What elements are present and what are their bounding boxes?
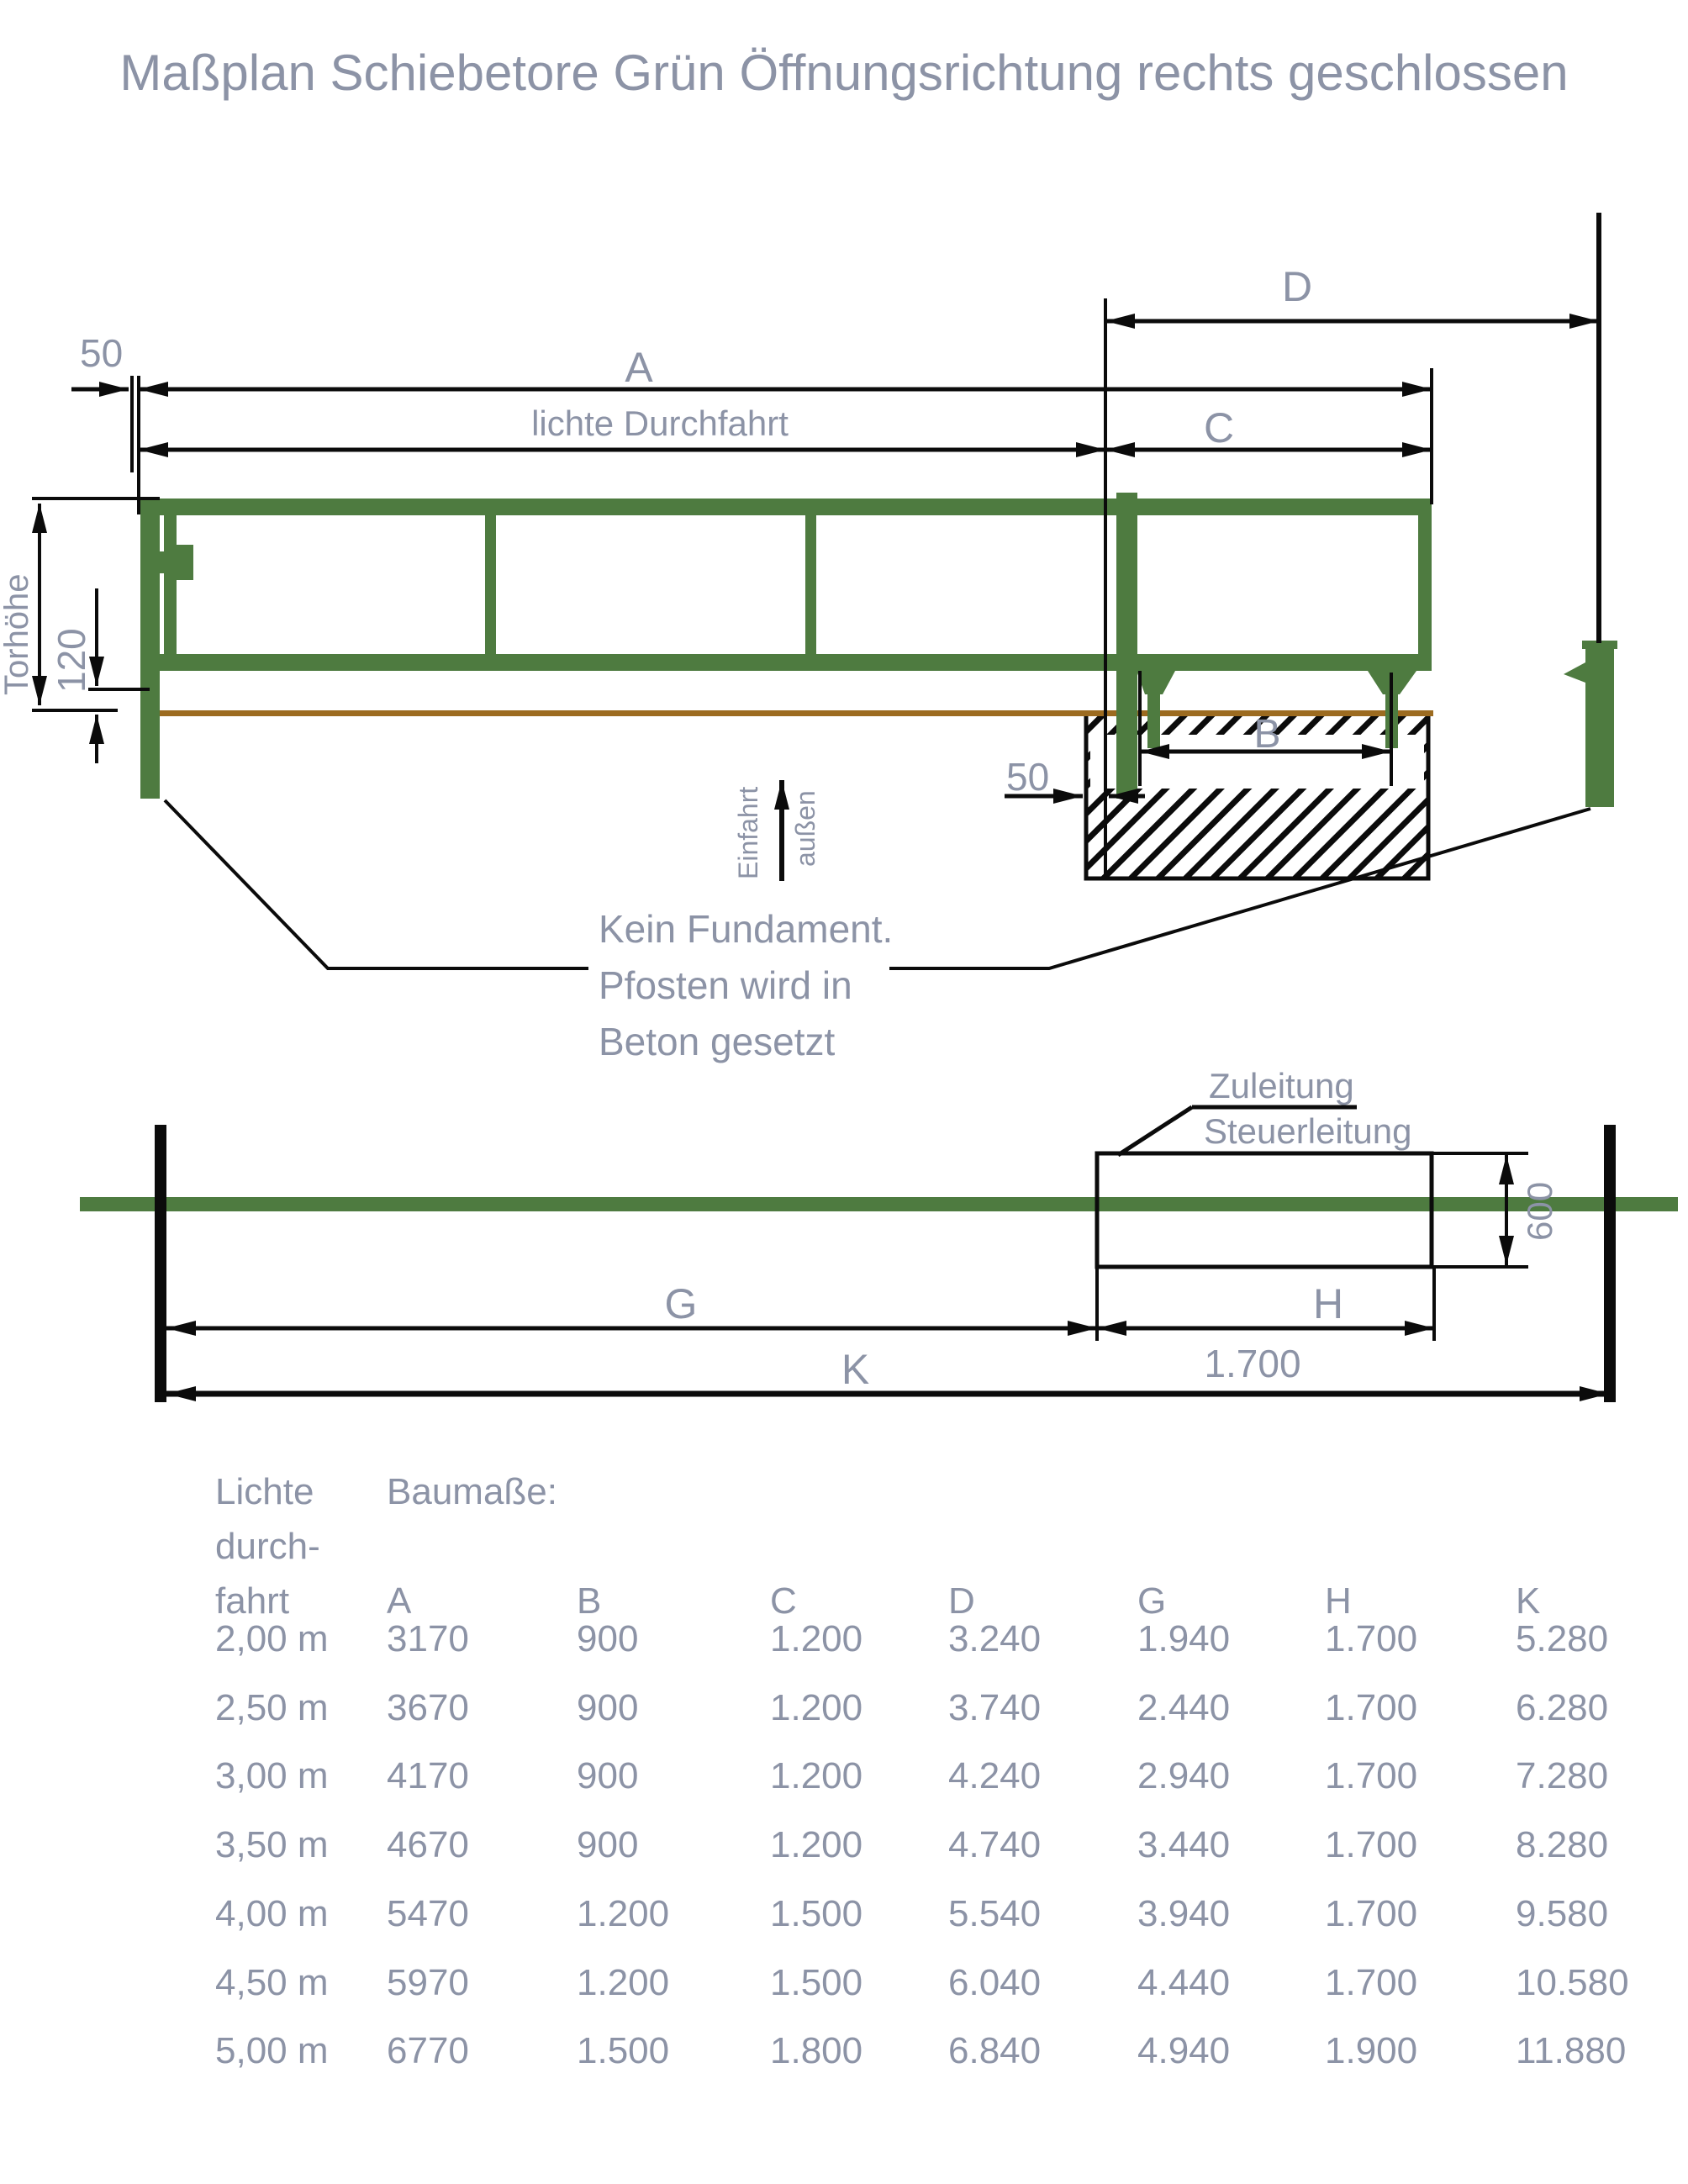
dim-600-label: 600 bbox=[1520, 1164, 1560, 1258]
table-cell: 9.580 bbox=[1516, 1893, 1688, 1935]
dim-50-foundation-label: 50 bbox=[1006, 754, 1049, 799]
dim-50-left-label: 50 bbox=[80, 330, 123, 376]
zuleitung-leader bbox=[1118, 1107, 1192, 1155]
table-row: 4,00 m54701.2001.5005.5403.9401.7009.580 bbox=[215, 1893, 1688, 1935]
table-col1-header: durch- bbox=[215, 1526, 320, 1568]
table-row: 2,00 m31709001.2003.2401.9401.7005.280 bbox=[215, 1618, 1688, 1660]
table-row: 3,50 m46709001.2004.7403.4401.7008.280 bbox=[215, 1824, 1688, 1866]
table-cell: 5.540 bbox=[948, 1893, 1137, 1935]
dim-g-label: G bbox=[647, 1279, 715, 1328]
table-cell: 4.440 bbox=[1137, 1962, 1325, 2004]
dim-c-label: C bbox=[1173, 404, 1265, 452]
note-leader-left bbox=[165, 800, 588, 968]
column-header: G bbox=[1137, 1580, 1325, 1622]
table-column-headers: A B C D G H K bbox=[215, 1580, 1688, 1622]
table-cell: 4670 bbox=[387, 1824, 577, 1866]
table-cell: 6.040 bbox=[948, 1962, 1137, 2004]
roller-support bbox=[1137, 671, 1175, 694]
left-post-plan bbox=[155, 1125, 166, 1402]
table-cell: 1.700 bbox=[1325, 1893, 1516, 1935]
einfahrt-label: Einfahrt bbox=[733, 780, 764, 885]
right-post bbox=[1585, 643, 1614, 807]
right-post-tab bbox=[1564, 662, 1585, 683]
table-cell: 5970 bbox=[387, 1962, 577, 2004]
front-view bbox=[32, 213, 1617, 968]
table-cell: 1.700 bbox=[1325, 1755, 1516, 1797]
table-cell: 1.200 bbox=[770, 1824, 948, 1866]
latch-bracket bbox=[173, 545, 193, 580]
table-cell: 1.200 bbox=[770, 1755, 948, 1797]
table-cell: 3,00 m bbox=[215, 1755, 387, 1797]
table-cell: 3670 bbox=[387, 1687, 577, 1729]
table-col1-header: Lichte bbox=[215, 1471, 314, 1513]
table-cell: 5,00 m bbox=[215, 2030, 387, 2072]
torhoehe-label: Torhöhe bbox=[0, 542, 36, 727]
table-cell: 3,50 m bbox=[215, 1824, 387, 1866]
table-cell: 1.200 bbox=[577, 1962, 770, 2004]
table-cell: 4,50 m bbox=[215, 1962, 387, 2004]
table-baumasse-header: Baumaße: bbox=[387, 1471, 557, 1513]
dim-b-label: B bbox=[1227, 711, 1307, 757]
table-row: 5,00 m67701.5001.8006.8404.9401.90011.88… bbox=[215, 2030, 1688, 2072]
table-cell: 4,00 m bbox=[215, 1893, 387, 1935]
table-cell: 900 bbox=[577, 1755, 770, 1797]
table-cell: 4.240 bbox=[948, 1755, 1137, 1797]
table-cell: 2,50 m bbox=[215, 1687, 387, 1729]
table-cell: 3170 bbox=[387, 1618, 577, 1660]
table-cell: 4.940 bbox=[1137, 2030, 1325, 2072]
gate-top-rail bbox=[160, 499, 1432, 515]
dim-d-label: D bbox=[1251, 262, 1343, 311]
note-line: Pfosten wird in bbox=[599, 957, 893, 1014]
table-cell: 11.880 bbox=[1516, 2030, 1688, 2072]
column-header: H bbox=[1325, 1580, 1516, 1622]
table-cell: 1.500 bbox=[770, 1893, 948, 1935]
table-cell: 1.700 bbox=[1325, 1824, 1516, 1866]
column-header: D bbox=[948, 1580, 1137, 1622]
steuerleitung-label: Steuerleitung bbox=[1204, 1111, 1412, 1152]
dim-lichte-label: lichte Durchfahrt bbox=[496, 404, 824, 444]
table-cell: 900 bbox=[577, 1687, 770, 1729]
table-cell: 4.740 bbox=[948, 1824, 1137, 1866]
foundation-note: Kein Fundament. Pfosten wird in Beton ge… bbox=[599, 901, 893, 1070]
table-cell: 4170 bbox=[387, 1755, 577, 1797]
note-line: Kein Fundament. bbox=[599, 901, 893, 957]
table-cell: 900 bbox=[577, 1824, 770, 1866]
masplan-page: Maßplan Schiebetore Grün Öffnungsrichtun… bbox=[0, 0, 1688, 2184]
column-header: C bbox=[770, 1580, 948, 1622]
note-line: Beton gesetzt bbox=[599, 1014, 893, 1070]
table-cell: 2.940 bbox=[1137, 1755, 1325, 1797]
table-row: 4,50 m59701.2001.5006.0404.4401.70010.58… bbox=[215, 1962, 1688, 2004]
table-cell: 1.700 bbox=[1325, 1962, 1516, 2004]
table-cell: 3.240 bbox=[948, 1618, 1137, 1660]
aussen-label: außen bbox=[790, 782, 821, 876]
dim-a-label: A bbox=[588, 343, 689, 392]
table-row: 2,50 m36709001.2003.7402.4401.7006.280 bbox=[215, 1687, 1688, 1729]
gate-track-line bbox=[80, 1197, 1678, 1211]
roller-stem bbox=[1147, 694, 1160, 748]
table-cell: 1.200 bbox=[770, 1618, 948, 1660]
table-cell: 6.840 bbox=[948, 2030, 1137, 2072]
latch-bracket bbox=[158, 551, 173, 573]
column-header: K bbox=[1516, 1580, 1688, 1622]
gate-divider bbox=[485, 507, 496, 662]
table-cell: 1.700 bbox=[1325, 1618, 1516, 1660]
table-cell: 1.940 bbox=[1137, 1618, 1325, 1660]
zuleitung-label: Zuleitung bbox=[1209, 1066, 1354, 1106]
dim-h-label: H bbox=[1299, 1279, 1358, 1328]
table-cell: 1.200 bbox=[770, 1687, 948, 1729]
table-cell: 900 bbox=[577, 1618, 770, 1660]
guide-post bbox=[1116, 493, 1137, 799]
column-header: B bbox=[577, 1580, 770, 1622]
table-cell: 3.740 bbox=[948, 1687, 1137, 1729]
table-cell: 7.280 bbox=[1516, 1755, 1688, 1797]
table-cell: 10.580 bbox=[1516, 1962, 1688, 2004]
right-post-plan bbox=[1604, 1125, 1616, 1402]
gate-divider bbox=[805, 507, 816, 662]
dim-120-label: 120 bbox=[49, 604, 94, 717]
page-title: Maßplan Schiebetore Grün Öffnungsrichtun… bbox=[0, 44, 1688, 102]
table-cell: 3.440 bbox=[1137, 1824, 1325, 1866]
table-cell: 2,00 m bbox=[215, 1618, 387, 1660]
left-post bbox=[140, 498, 160, 799]
table-cell: 5470 bbox=[387, 1893, 577, 1935]
table-cell: 1.700 bbox=[1325, 1687, 1516, 1729]
table-cell: 1.500 bbox=[770, 1962, 948, 2004]
table-cell: 3.940 bbox=[1137, 1893, 1325, 1935]
dim-k-label: K bbox=[828, 1345, 883, 1394]
table-cell: 2.440 bbox=[1137, 1687, 1325, 1729]
table-cell: 1.900 bbox=[1325, 2030, 1516, 2072]
table-cell: 8.280 bbox=[1516, 1824, 1688, 1866]
gate-bottom-rail bbox=[160, 654, 1432, 671]
dim-1700-label: 1.700 bbox=[1190, 1341, 1316, 1386]
gate-left-stile bbox=[164, 499, 177, 671]
table-cell: 6.280 bbox=[1516, 1687, 1688, 1729]
table-cell: 1.800 bbox=[770, 2030, 948, 2072]
column-header: A bbox=[387, 1580, 577, 1622]
gate-right-stile bbox=[1418, 499, 1432, 671]
table-cell: 1.500 bbox=[577, 2030, 770, 2072]
table-cell: 5.280 bbox=[1516, 1618, 1688, 1660]
table-cell: 6770 bbox=[387, 2030, 577, 2072]
table-row: 3,00 m41709001.2004.2402.9401.7007.280 bbox=[215, 1755, 1688, 1797]
table-cell: 1.200 bbox=[577, 1893, 770, 1935]
